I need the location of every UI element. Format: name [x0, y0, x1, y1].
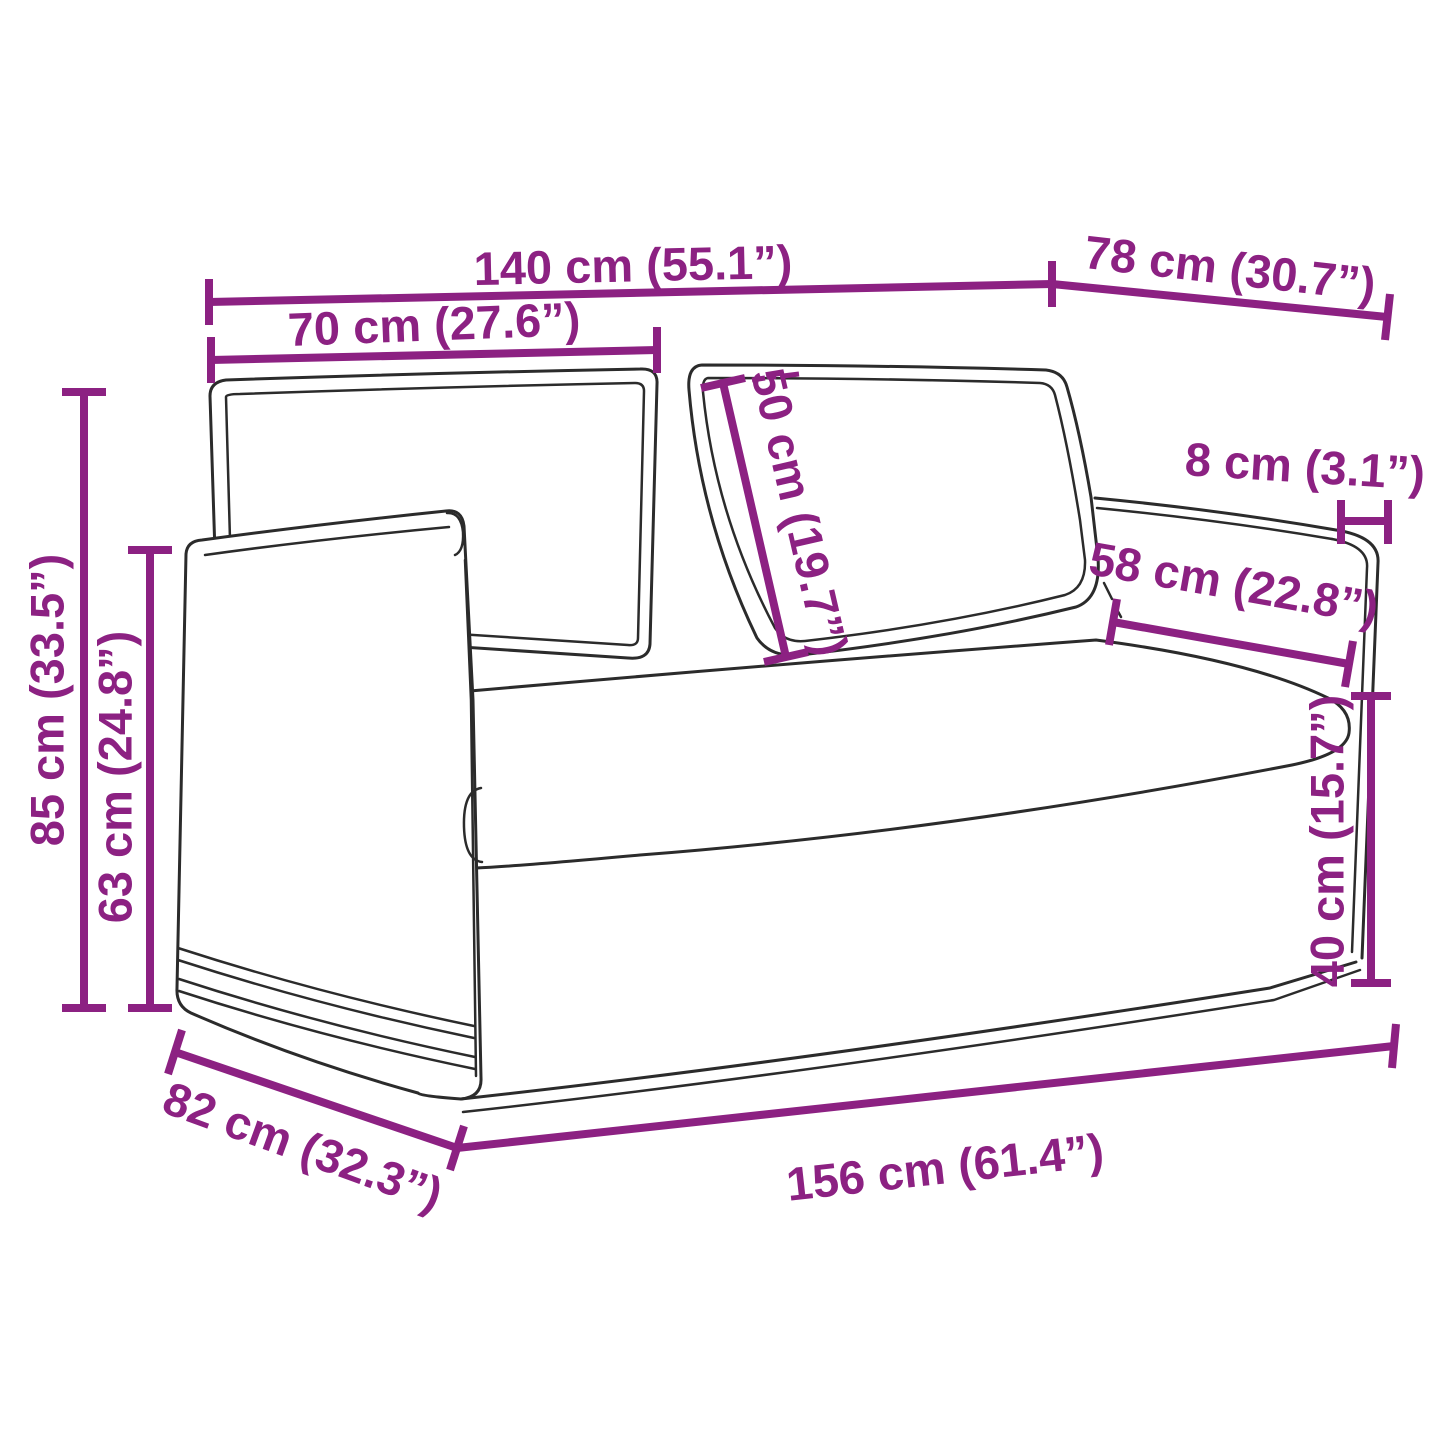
dim-label-base-width: 156 cm (61.4”)	[784, 1123, 1107, 1211]
dim-label-seat-depth: 58 cm (22.8”)	[1085, 531, 1382, 634]
dim-label-total-height: 85 cm (33.5”)	[20, 554, 73, 847]
left-armrest	[177, 511, 481, 1099]
dimension-seat-height: 40 cm (15.7”)	[1300, 695, 1391, 988]
dim-label-half-width: 70 cm (27.6”)	[287, 292, 581, 356]
dim-tick	[1392, 1024, 1396, 1068]
base-bottom-edge	[461, 962, 1356, 1099]
dimension-diagram: 140 cm (55.1”) 78 cm (30.7”) 70 cm (27.6…	[0, 0, 1445, 1445]
dim-tick	[1109, 599, 1117, 645]
dim-label-overall-width: 140 cm (55.1”)	[473, 235, 793, 295]
dim-label-seat-height: 40 cm (15.7”)	[1300, 695, 1353, 988]
dimension-armrest-height: 63 cm (24.8”)	[88, 550, 172, 1008]
dim-tick	[1345, 641, 1353, 687]
dim-label-armrest-width: 8 cm (3.1”)	[1183, 432, 1426, 500]
dimension-armrest-width: 8 cm (3.1”)	[1183, 432, 1426, 544]
sofa-dimension-svg: 140 cm (55.1”) 78 cm (30.7”) 70 cm (27.6…	[0, 0, 1445, 1445]
dim-label-armrest-height: 63 cm (24.8”)	[88, 631, 141, 924]
dim-line	[211, 350, 657, 360]
seat-cushion	[470, 640, 1349, 868]
right-armrest-top-edge	[1095, 498, 1336, 530]
dimension-top-depth: 78 cm (30.7”)	[1052, 225, 1390, 340]
dim-tick	[1385, 294, 1390, 340]
dim-tick	[764, 652, 808, 662]
